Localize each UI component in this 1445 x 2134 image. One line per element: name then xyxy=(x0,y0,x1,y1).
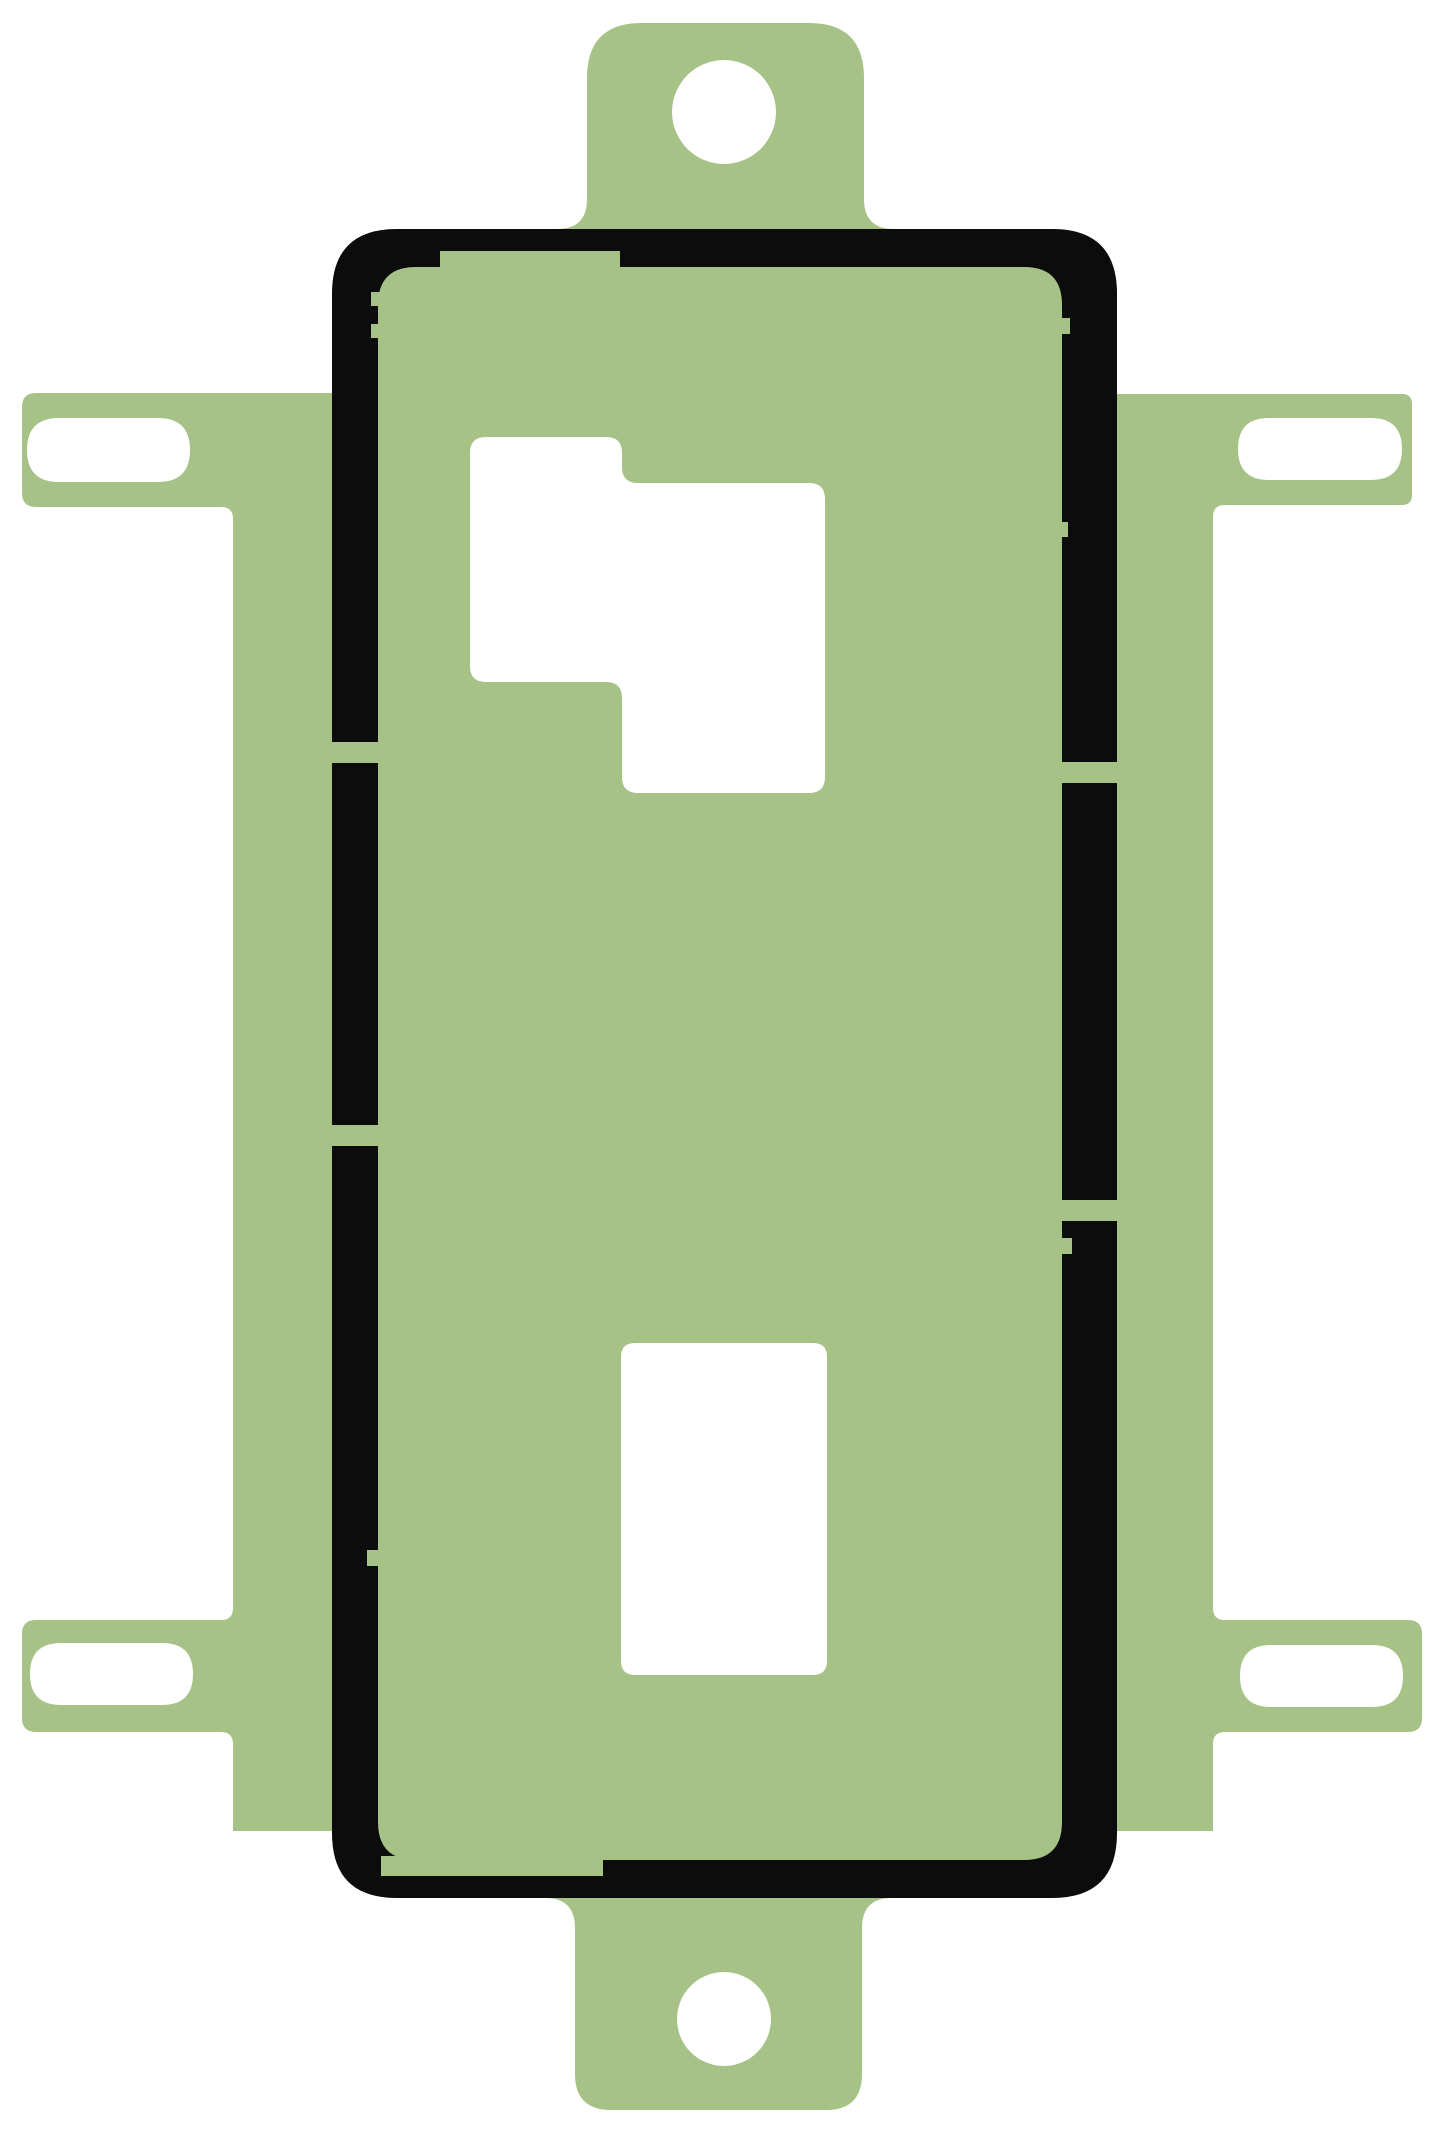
adhesive-sheet-illustration xyxy=(0,0,1445,2134)
green-liner-sheet-silhouette xyxy=(22,23,1422,2110)
product-photo-canvas xyxy=(0,0,1445,2134)
